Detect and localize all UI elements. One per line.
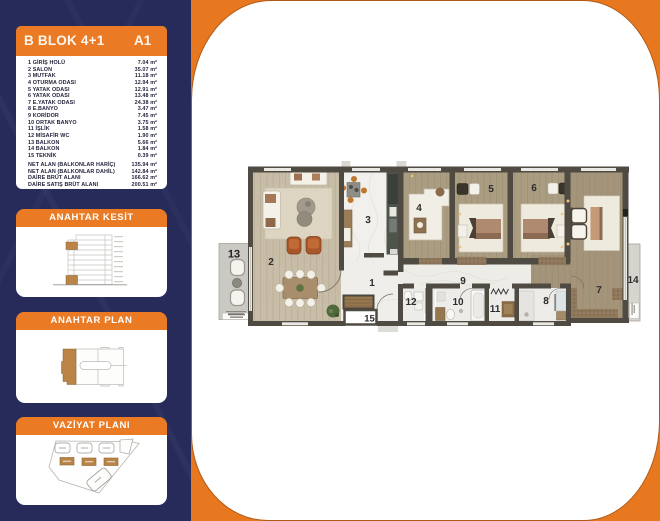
svg-text:2: 2 xyxy=(268,257,274,268)
svg-text:8: 8 xyxy=(543,296,549,307)
svg-text:9: 9 xyxy=(460,276,466,287)
svg-text:1: 1 xyxy=(369,278,375,289)
svg-text:10: 10 xyxy=(452,297,464,308)
svg-text:14: 14 xyxy=(627,275,639,286)
svg-text:7: 7 xyxy=(596,285,602,296)
svg-text:11: 11 xyxy=(490,304,501,315)
svg-text:4: 4 xyxy=(416,203,422,214)
svg-text:15: 15 xyxy=(364,314,375,325)
svg-text:5: 5 xyxy=(488,184,494,195)
svg-text:13: 13 xyxy=(228,249,240,261)
svg-text:6: 6 xyxy=(531,183,537,194)
svg-text:12: 12 xyxy=(405,297,417,308)
svg-text:3: 3 xyxy=(365,215,371,226)
